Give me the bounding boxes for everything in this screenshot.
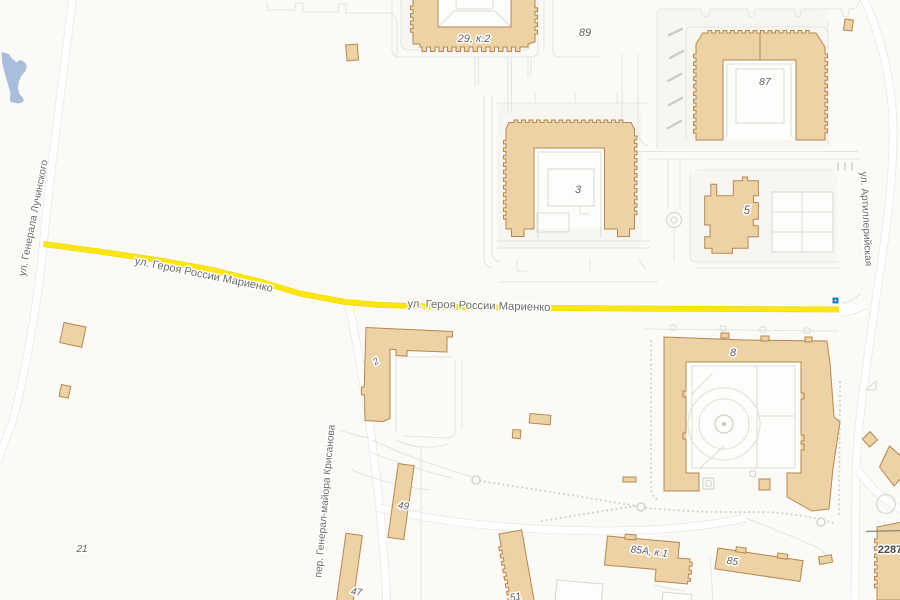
svg-text:21: 21 — [75, 544, 87, 555]
svg-text:2287: 2287 — [878, 544, 900, 556]
svg-text:47: 47 — [350, 586, 363, 599]
svg-text:49: 49 — [397, 500, 410, 513]
svg-text:29, к.2: 29, к.2 — [457, 33, 491, 45]
svg-text:85: 85 — [726, 556, 739, 569]
svg-text:8: 8 — [730, 347, 737, 359]
svg-text:87: 87 — [759, 76, 772, 88]
svg-text:51: 51 — [509, 591, 522, 600]
svg-text:3: 3 — [575, 184, 582, 196]
svg-text:89: 89 — [579, 27, 591, 39]
svg-text:5: 5 — [744, 205, 751, 217]
